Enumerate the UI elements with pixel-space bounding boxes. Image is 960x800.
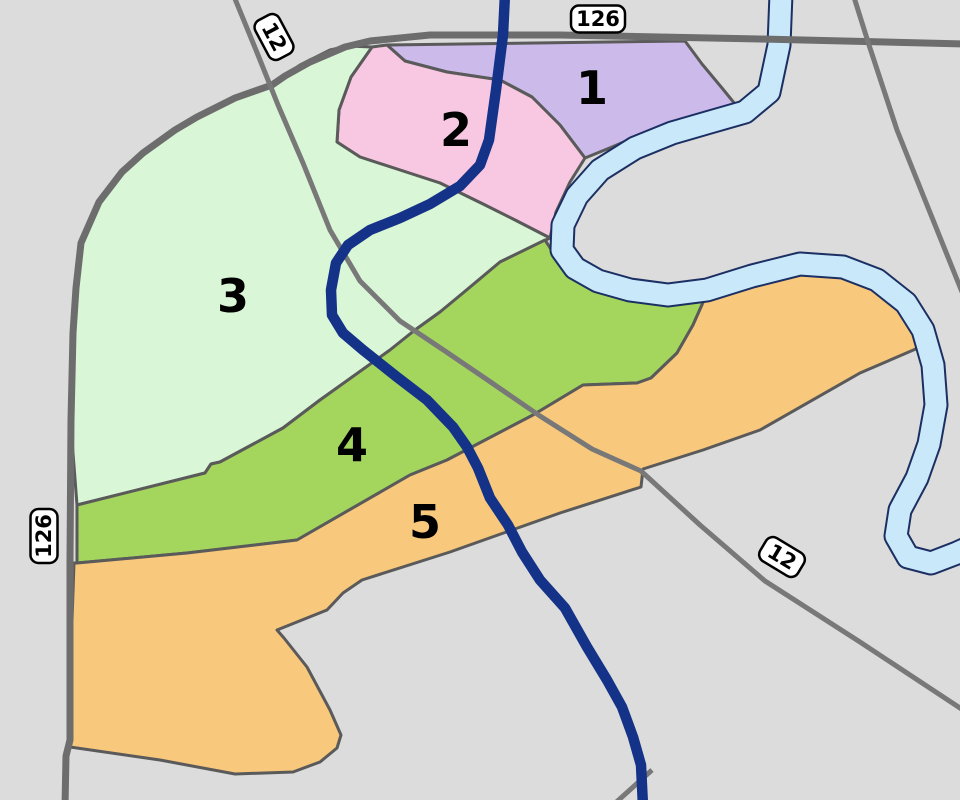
- route-shield-number: 126: [32, 514, 56, 558]
- district-label-1: 1: [576, 61, 608, 115]
- district-label-3: 3: [217, 269, 249, 323]
- district-label-4: 4: [336, 418, 368, 472]
- district-label-5: 5: [409, 495, 441, 549]
- map-canvas: 1261212612 12345: [0, 0, 960, 800]
- district-label-2: 2: [440, 103, 472, 157]
- route-shield-number: 126: [576, 7, 620, 31]
- district-map: 1261212612 12345: [0, 0, 960, 800]
- route-shield-126-2: 126: [31, 509, 58, 563]
- route-shield-126-0: 126: [571, 6, 625, 33]
